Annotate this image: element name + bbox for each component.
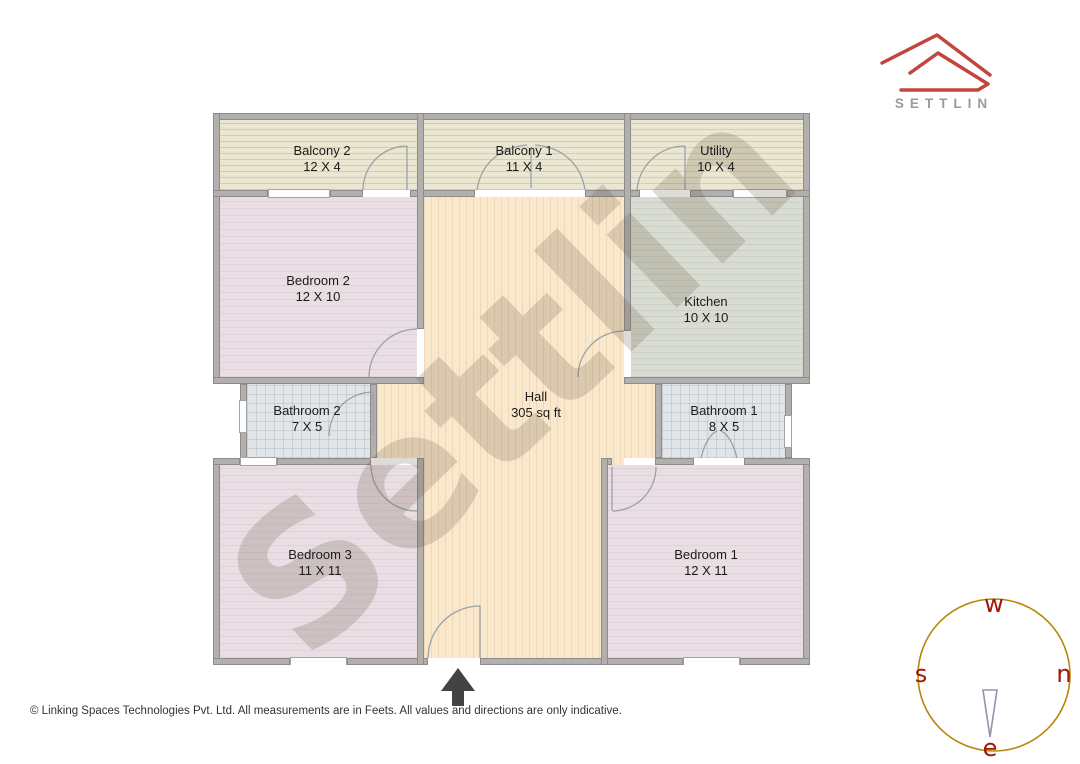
compass-needle [983, 690, 997, 737]
room-name: Balcony 1 [495, 143, 552, 158]
room-name: Balcony 2 [293, 143, 350, 158]
door-arc-bedroom-3 [371, 465, 417, 511]
room-dims: 12 X 11 [684, 563, 728, 578]
room-label-hall: Hall 305 sq ft [511, 389, 561, 421]
room-label-bathroom-2: Bathroom 2 7 X 5 [273, 403, 340, 435]
room-label-balcony-1: Balcony 1 11 X 4 [495, 143, 552, 175]
room-label-bedroom-3: Bedroom 3 11 X 11 [288, 547, 352, 579]
compass-letter-n: n [1056, 660, 1071, 688]
room-dims: 8 X 5 [709, 419, 739, 434]
entrance-arrow-icon [441, 668, 475, 708]
room-dims: 10 X 4 [697, 159, 735, 174]
room-label-bedroom-2: Bedroom 2 12 X 10 [286, 273, 350, 305]
room-label-bedroom-1: Bedroom 1 12 X 11 [674, 547, 738, 579]
room-label-balcony-2: Balcony 2 12 X 4 [293, 143, 350, 175]
compass-letter-s: s [915, 660, 928, 688]
room-dims: 11 X 11 [299, 563, 342, 578]
room-name: Bedroom 3 [288, 547, 352, 562]
room-dims: 12 X 10 [296, 289, 341, 304]
door-arc-bathroom-1 [701, 431, 737, 458]
footer-disclaimer: © Linking Spaces Technologies Pvt. Ltd. … [30, 705, 622, 717]
door-arc-kitchen [578, 331, 624, 377]
room-name: Bedroom 1 [674, 547, 738, 562]
brand-name: SETTLIN [884, 96, 1004, 111]
room-name: Bedroom 2 [286, 273, 350, 288]
room-dims: 7 X 5 [292, 419, 322, 434]
room-label-kitchen: Kitchen 10 X 10 [684, 294, 729, 326]
room-dims: 305 sq ft [511, 405, 561, 420]
compass-letter-e: e [983, 734, 998, 762]
room-name: Utility [700, 143, 732, 158]
page: Settlin Balcony 2 12 X 4 Balcony 1 11 X … [0, 0, 1080, 764]
room-dims: 10 X 10 [684, 310, 729, 325]
room-label-bathroom-1: Bathroom 1 8 X 5 [690, 403, 757, 435]
door-arc-utility [637, 146, 685, 190]
floor-plan: Settlin Balcony 2 12 X 4 Balcony 1 11 X … [213, 113, 810, 665]
door-arc-balcony-2 [363, 146, 407, 190]
room-name: Bathroom 2 [273, 403, 340, 418]
door-arc-bedroom-1 [612, 467, 656, 511]
room-name: Kitchen [684, 294, 727, 309]
door-arc-entrance [428, 606, 480, 658]
room-label-utility: Utility 10 X 4 [697, 143, 735, 175]
compass-circle [918, 599, 1070, 751]
room-name: Bathroom 1 [690, 403, 757, 418]
brand-logo-icon [876, 28, 1001, 96]
room-dims: 12 X 4 [303, 159, 341, 174]
room-dims: 11 X 4 [506, 159, 543, 174]
room-name: Hall [525, 389, 547, 404]
compass: w n e s [905, 580, 1080, 764]
door-arc-bedroom-2 [369, 329, 417, 377]
compass-letter-w: w [984, 590, 1004, 618]
